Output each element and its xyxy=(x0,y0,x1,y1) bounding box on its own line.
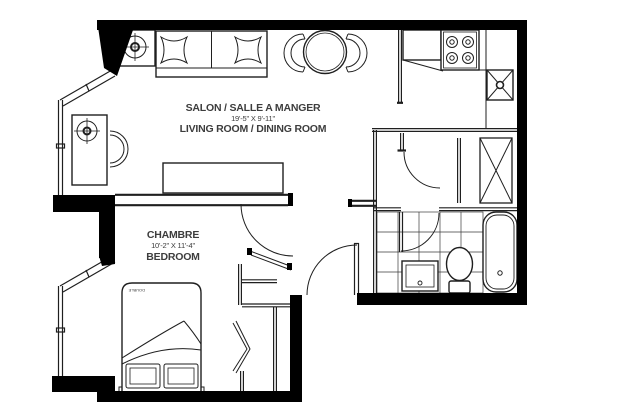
double-bed-icon: DOUBLE xyxy=(119,283,204,393)
bedroom-closet xyxy=(233,248,292,391)
sofa-icon xyxy=(156,31,267,77)
dining-chair-left-icon xyxy=(284,34,305,72)
bedroom-dimensions: 10'-2" X 11'-4" xyxy=(151,241,195,250)
bifold-closet-door-icon xyxy=(233,323,247,371)
kitchen-sink-icon xyxy=(487,70,513,100)
bathroom-vanity-sink-icon xyxy=(402,261,438,291)
hall-closet-door-arc xyxy=(404,152,440,188)
living-dining-label: SALON / SALLE A MANGER 19'-5" X 9'-11" L… xyxy=(180,102,327,135)
living-dining-title-fr: SALON / SALLE A MANGER xyxy=(186,102,321,114)
bedroom-title-fr: CHAMBRE xyxy=(147,229,199,241)
bedroom-label: CHAMBRE 10'-2" X 11'-4" BEDROOM xyxy=(146,229,200,263)
bed-size-label: DOUBLE xyxy=(128,288,145,293)
bathtub-icon xyxy=(483,212,517,292)
hall-closet-icon xyxy=(480,138,512,203)
entry-door-arc xyxy=(307,245,357,295)
dining-chair-right-icon xyxy=(346,34,367,72)
bedroom-title-en: BEDROOM xyxy=(146,251,200,263)
dining-table-icon xyxy=(304,31,347,74)
desk-with-lamp-icon xyxy=(72,115,107,185)
tv-console-icon xyxy=(163,163,283,193)
desk-chair-icon xyxy=(110,131,128,167)
stove-icon xyxy=(441,30,479,70)
toilet-icon xyxy=(447,248,473,294)
living-dining-dimensions: 19'-5" X 9'-11" xyxy=(231,114,275,123)
floor-plan-image: DOUBLE xyxy=(0,0,640,411)
living-dining-title-en: LIVING ROOM / DINING ROOM xyxy=(180,123,327,135)
